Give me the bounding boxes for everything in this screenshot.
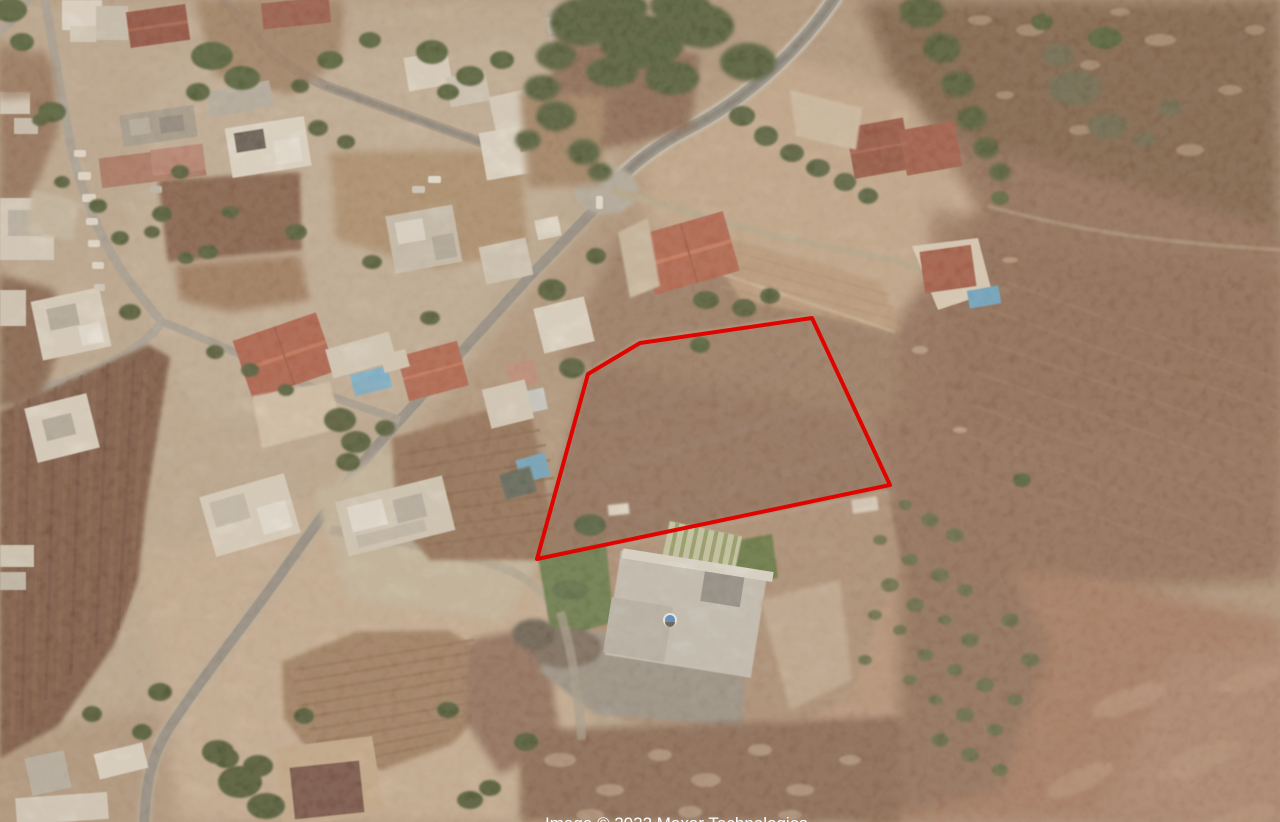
svg-text:Image © 2022 Maxar Technologie: Image © 2022 Maxar Technologies [545, 814, 808, 822]
